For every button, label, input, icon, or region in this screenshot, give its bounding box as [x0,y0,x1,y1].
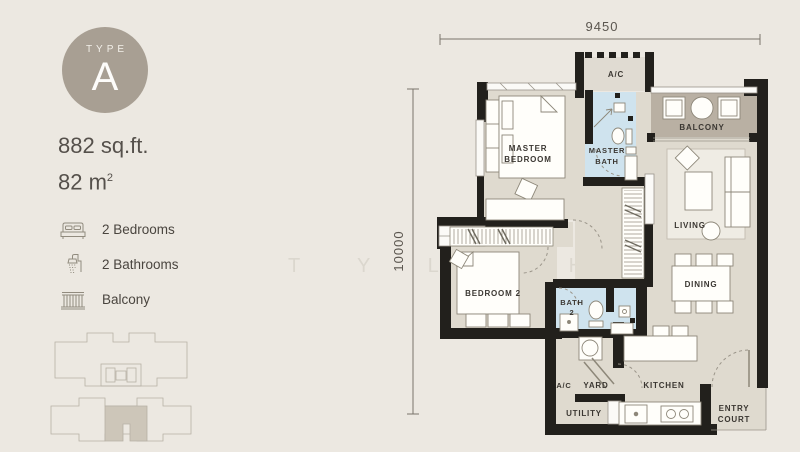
yard-fixtures [579,337,602,360]
label-master-bath-2: BATH [595,157,618,166]
label-entry-2: COURT [718,415,750,424]
label-dining: DINING [685,280,718,289]
label-master-bedroom-2: BEDROOM [504,155,551,164]
label-master-bath-1: MASTER [589,146,625,155]
dimension-left: 10000 [391,230,406,271]
balcony-furniture [663,97,740,119]
label-bath2-2: 2 [570,308,575,317]
label-living: LIVING [674,221,705,230]
label-entry-1: ENTRY [719,404,750,413]
label-yard: YARD [583,381,608,390]
dimension-top: 9450 [586,19,619,34]
label-utility: UTILITY [566,409,602,418]
label-master-bedroom-1: MASTER [509,144,548,153]
label-ac-top: A/C [608,70,624,79]
floor-plan: T Y L O H [0,0,800,452]
label-ac-bottom: A/C [556,381,571,390]
label-bedroom2: BEDROOM 2 [465,289,521,298]
label-balcony: BALCONY [679,123,724,132]
floorplan-page: { "unit": { "type_label": "TYPE", "type_… [0,0,800,452]
key-plan [51,333,191,441]
label-kitchen: KITCHEN [643,381,684,390]
key-plan-highlighted-unit [105,406,147,441]
label-bath2-1: BATH [560,298,583,307]
